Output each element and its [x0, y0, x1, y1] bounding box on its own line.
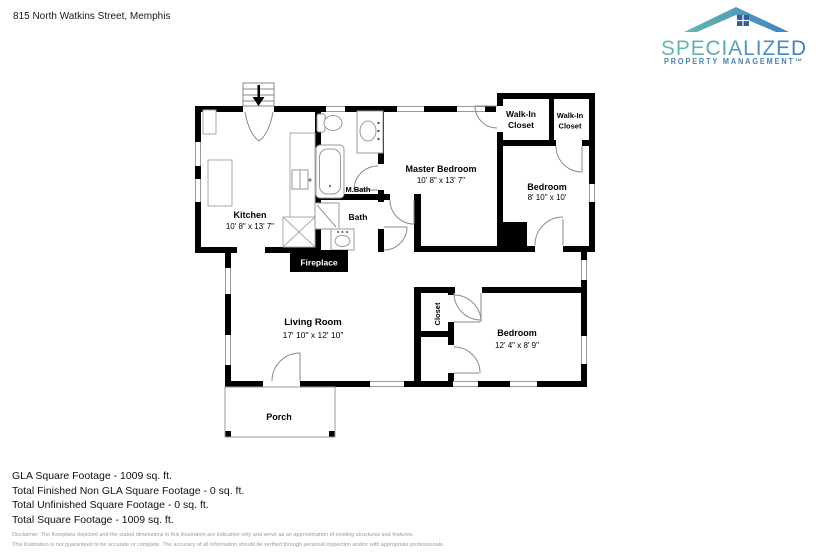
room-dims-bedroom-upper: 8' 10" x 10' [528, 193, 567, 202]
room-label-porch: Porch [266, 412, 292, 422]
house-roof-icon [684, 7, 789, 32]
room-labels: Kitchen 10' 8" x 13' 7" M.Bath Bath Mast… [226, 109, 584, 422]
roof-window-icon [737, 15, 749, 26]
room-label-walk-in-closet-right-2: Closet [559, 122, 582, 131]
room-label-bath: Bath [349, 212, 368, 222]
room-label-hall-closet: Closet [433, 302, 442, 325]
disclaimer-text: Disclaimer: The floorplans depicted and … [12, 531, 444, 550]
room-dims-bedroom-lower: 12' 4" x 8' 9" [495, 341, 539, 350]
room-label-bedroom-lower: Bedroom [497, 328, 537, 338]
range-fixture [283, 217, 315, 247]
summary-line-non-gla: Total Finished Non GLA Square Footage - … [12, 484, 244, 499]
porch-post [329, 431, 335, 437]
disclaimer-line-1: Disclaimer: The floorplans depicted and … [12, 531, 444, 541]
chimney-block [497, 222, 527, 248]
fireplace-block: Fireplace [290, 250, 348, 272]
entry-door-arch [245, 112, 273, 141]
brand-tagline: PROPERTY MANAGEMENT™ [664, 57, 804, 66]
room-dims-kitchen: 10' 8" x 13' 7" [226, 222, 274, 231]
toilet-fixture [317, 114, 342, 132]
summary-line-gla: GLA Square Footage - 1009 sq. ft. [12, 469, 244, 484]
room-dims-master-bedroom: 10' 8" x 13' 7" [417, 176, 465, 185]
vanity-sink-fixture [357, 111, 383, 153]
square-footage-summary: GLA Square Footage - 1009 sq. ft. Total … [12, 469, 244, 527]
bath-sink-fixture [331, 229, 354, 250]
room-label-walk-in-closet-right-1: Walk-In [557, 111, 584, 120]
shower-fixture [315, 203, 339, 229]
porch-post [225, 431, 231, 437]
room-label-bedroom-upper: Bedroom [527, 182, 567, 192]
room-label-master-bedroom: Master Bedroom [405, 164, 476, 174]
floor-plan-page: 815 North Watkins Street, Memphis SPECIA… [0, 0, 825, 560]
summary-line-total: Total Square Footage - 1009 sq. ft. [12, 513, 244, 528]
bathtub-fixture [316, 145, 344, 198]
room-label-walk-in-closet-left-1: Walk-In [506, 109, 536, 119]
room-label-kitchen: Kitchen [233, 210, 266, 220]
kitchen-island [208, 160, 232, 206]
brand-logo: SPECIALIZED PROPERTY MANAGEMENT™ [661, 7, 807, 66]
disclaimer-line-2: This illustration is not guaranteed to b… [12, 541, 444, 551]
room-label-master-bath: M.Bath [346, 185, 371, 194]
room-label-living-room: Living Room [284, 317, 342, 328]
summary-line-unfinished: Total Unfinished Square Footage - 0 sq. … [12, 498, 244, 513]
room-label-walk-in-closet-left-2: Closet [508, 120, 534, 130]
kitchen-cabinet [203, 110, 216, 134]
room-label-fireplace: Fireplace [300, 258, 338, 268]
room-dims-living-room: 17' 10" x 12' 10" [283, 330, 344, 340]
